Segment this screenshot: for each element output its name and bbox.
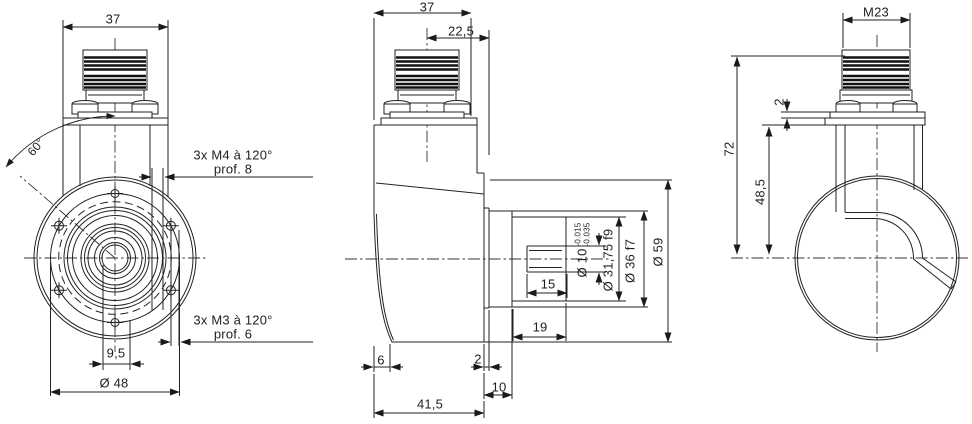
callout-m3-line2: prof. 6: [214, 327, 252, 342]
dim-label-keyway-len: 15: [541, 277, 556, 292]
housing-body: [374, 125, 566, 342]
linear-dims-middle: [361, 13, 567, 418]
linear-dims-right: [731, 13, 910, 254]
dim-label-height-total: 72: [722, 142, 737, 157]
dim-label-body-depth: 41,5: [417, 397, 443, 412]
callout-m4-line1: 3x M4 à 120°: [193, 148, 272, 163]
dim-label-spigot-dia: Ø 31,75 f9: [601, 229, 616, 292]
dim-label-hole-offset: 9,5: [107, 346, 126, 361]
connector-side: [381, 50, 477, 125]
dim-label-step: 2: [474, 352, 481, 367]
dim-label-height-flange: 48,5: [753, 179, 768, 205]
dim-label-plate: 2: [772, 98, 787, 105]
dim-label-bore-dia: Ø 10-0.015-0.035: [575, 223, 592, 278]
dim-label-spigot-len: 19: [533, 320, 548, 335]
bore-tolerance: -0.015-0.035: [575, 223, 592, 247]
connector-front: [63, 50, 168, 125]
left-view: [6, 20, 313, 396]
dim-label-foot: 6: [377, 353, 384, 368]
technical-drawing-encoder: 37 60° 3x M4 à 120° prof. 8 3x M3 à 120°…: [0, 0, 972, 424]
dim-label-flange-dia: Ø 48: [100, 376, 129, 391]
dim-label-connector-offset: 22,5: [448, 24, 474, 39]
bore-tol-lower: -0.035: [583, 223, 591, 247]
dim-label-flange-depth: 10: [492, 380, 507, 395]
dim-label-width-middle: 37: [420, 0, 435, 15]
dim-label-width-left: 37: [106, 12, 121, 27]
bore-dia-value: Ø 10: [575, 248, 590, 277]
dim-label-collar-dia: Ø 36 f7: [623, 239, 638, 283]
m4-callout-lines: [139, 168, 313, 310]
dim-label-body-dia: Ø 59: [651, 238, 666, 267]
connector-rear: [825, 50, 925, 125]
drawing-canvas: [0, 0, 972, 424]
callout-m4-line2: prof. 8: [214, 162, 252, 177]
middle-view: [345, 13, 672, 418]
dim-label-thread: M23: [863, 5, 889, 20]
callout-m3-line1: 3x M3 à 120°: [193, 313, 272, 328]
